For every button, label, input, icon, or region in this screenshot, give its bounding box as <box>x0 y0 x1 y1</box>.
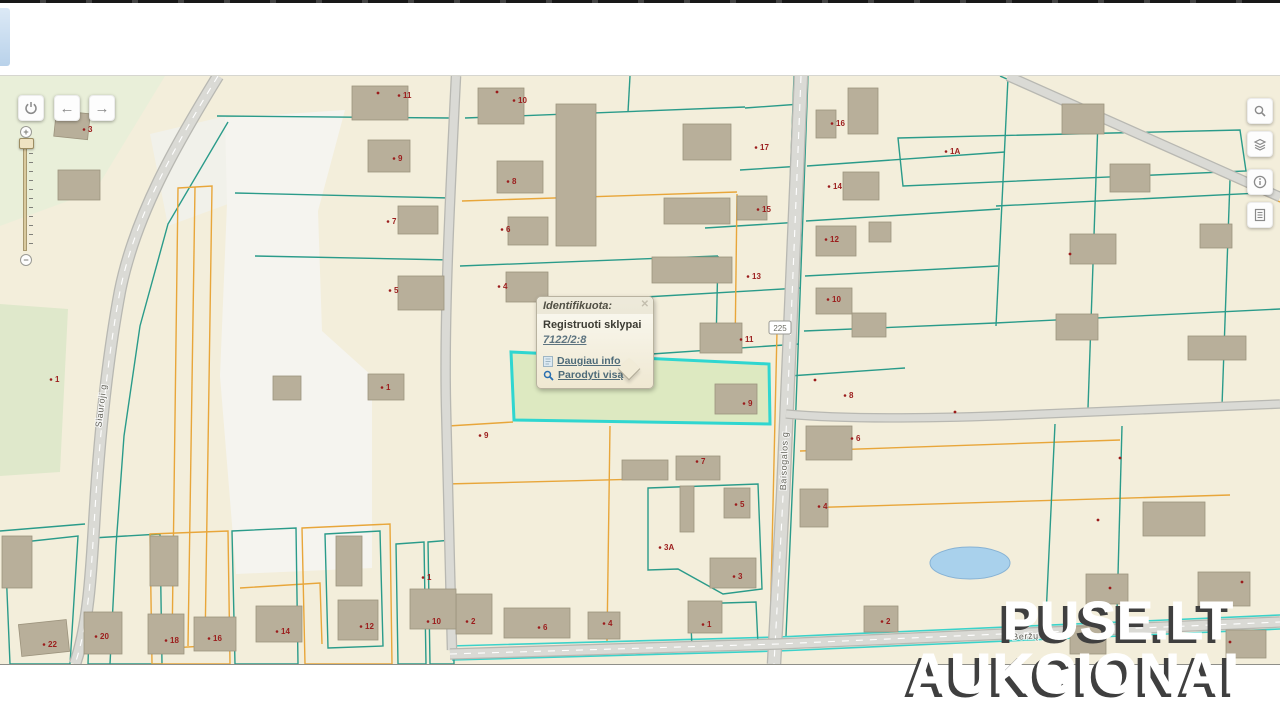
road-shield-label: 225 <box>773 324 787 333</box>
zoom-slider-ticks <box>29 144 33 250</box>
house-number-dot <box>757 208 760 211</box>
house-number-label: 18 <box>170 636 179 645</box>
next-extent-button[interactable]: → <box>89 95 115 121</box>
house-number-label: 10 <box>432 617 441 626</box>
zoom-slider[interactable]: + − <box>19 126 34 268</box>
previous-extent-button[interactable]: ← <box>54 95 80 121</box>
house-number-dot <box>945 150 948 153</box>
power-icon <box>24 101 38 115</box>
house-number-label: 15 <box>762 205 771 214</box>
house-number-dot <box>1097 519 1100 522</box>
search-icon <box>1253 104 1267 118</box>
house-number-dot <box>740 338 743 341</box>
building <box>497 161 543 193</box>
building <box>652 257 732 283</box>
house-number-dot <box>208 637 211 640</box>
house-number-dot <box>43 643 46 646</box>
house-number-dot <box>844 394 847 397</box>
parcel-id-link[interactable]: 7122/2:8 <box>543 334 647 346</box>
house-number-label: 10 <box>832 295 841 304</box>
house-number-label: 7 <box>392 217 397 226</box>
building <box>843 172 879 200</box>
house-number-label: 7 <box>701 457 706 466</box>
building <box>1062 104 1104 134</box>
house-number-label: 9 <box>484 431 489 440</box>
house-number-label: 4 <box>823 502 828 511</box>
house-number-dot <box>747 275 750 278</box>
house-number-label: 2 <box>886 617 891 626</box>
building <box>1188 336 1246 360</box>
building <box>508 217 548 245</box>
house-number-dot <box>377 92 380 95</box>
house-number-label: 12 <box>365 622 374 631</box>
building <box>1070 234 1116 264</box>
page-info-icon <box>543 356 553 367</box>
building <box>1110 164 1150 192</box>
building <box>700 323 742 353</box>
house-number-dot <box>479 434 482 437</box>
building <box>456 594 492 634</box>
house-number-label: 17 <box>760 143 769 152</box>
search-button[interactable] <box>1247 98 1273 124</box>
house-number-dot <box>825 238 828 241</box>
building <box>504 608 570 638</box>
arrow-left-icon: ← <box>60 100 75 117</box>
land-zone <box>0 304 68 476</box>
house-number-dot <box>827 298 830 301</box>
building <box>273 376 301 400</box>
building <box>869 222 891 242</box>
house-number-dot <box>387 220 390 223</box>
house-number-label: 22 <box>48 640 57 649</box>
zoom-out-button[interactable]: − <box>20 254 32 266</box>
building <box>864 606 898 632</box>
close-icon[interactable]: ✕ <box>641 299 649 310</box>
zoom-in-button[interactable]: + <box>20 126 32 138</box>
house-number-dot <box>427 620 430 623</box>
house-number-label: 6 <box>856 434 861 443</box>
info-icon <box>1253 175 1267 189</box>
house-number-label: 4 <box>608 619 613 628</box>
building <box>2 536 32 588</box>
watermark-line2: AUKCIONAI <box>908 646 1240 703</box>
house-number-dot <box>881 620 884 623</box>
info-button[interactable] <box>1247 169 1273 195</box>
building <box>664 198 730 224</box>
house-number-label: 3 <box>88 125 93 134</box>
house-number-label: 1A <box>950 147 960 156</box>
house-number-label: 16 <box>836 119 845 128</box>
house-number-dot <box>1119 457 1122 460</box>
house-number-label: 11 <box>745 335 754 344</box>
house-number-dot <box>83 128 86 131</box>
zoom-slider-handle[interactable] <box>19 138 34 149</box>
building <box>398 206 438 234</box>
building <box>806 426 852 460</box>
house-number-dot <box>381 386 384 389</box>
building <box>148 614 184 654</box>
house-number-dot <box>360 625 363 628</box>
house-number-label: 9 <box>398 154 403 163</box>
house-number-dot <box>95 635 98 638</box>
building <box>398 276 444 310</box>
house-number-label: 6 <box>543 623 548 632</box>
house-number-label: 13 <box>752 272 761 281</box>
results-list-icon <box>1253 208 1267 222</box>
house-number-label: 16 <box>213 634 222 643</box>
house-number-dot <box>466 620 469 623</box>
building <box>724 488 750 518</box>
building <box>852 313 886 337</box>
house-number-dot <box>393 157 396 160</box>
browser-edge-fragment <box>0 8 10 66</box>
building <box>556 104 596 246</box>
house-number-label: 5 <box>740 500 745 509</box>
house-number-dot <box>538 626 541 629</box>
house-number-dot <box>1241 581 1244 584</box>
building <box>710 558 756 588</box>
house-number-dot <box>733 575 736 578</box>
more-info-label: Daugiau info <box>557 355 621 367</box>
building <box>680 486 694 532</box>
house-number-label: 12 <box>830 235 839 244</box>
building <box>58 170 100 200</box>
building <box>336 536 362 586</box>
house-number-dot <box>513 99 516 102</box>
house-number-label: 20 <box>100 632 109 641</box>
house-number-label: 8 <box>512 177 517 186</box>
building <box>848 88 878 134</box>
watermark-line1: PUSE.LT <box>1003 594 1234 648</box>
house-number-dot <box>507 180 510 183</box>
house-number-dot <box>50 378 53 381</box>
house-number-dot <box>1109 587 1112 590</box>
house-number-label: 1 <box>707 620 712 629</box>
house-number-label: 2 <box>471 617 476 626</box>
house-number-dot <box>743 402 746 405</box>
building <box>368 140 410 172</box>
house-number-label: 3A <box>664 543 674 552</box>
building <box>1143 502 1205 536</box>
layers-button[interactable] <box>1247 131 1273 157</box>
building <box>478 88 524 124</box>
house-number-dot <box>1069 253 1072 256</box>
building <box>676 456 720 480</box>
house-number-label: 3 <box>738 572 743 581</box>
show-all-label: Parodyti visą <box>558 369 623 381</box>
house-number-dot <box>814 379 817 382</box>
house-number-dot <box>498 285 501 288</box>
building <box>1056 314 1098 340</box>
house-number-dot <box>501 228 504 231</box>
house-number-label: 4 <box>503 282 508 291</box>
house-number-label: 1 <box>386 383 391 392</box>
house-number-dot <box>702 623 705 626</box>
building <box>688 601 722 633</box>
house-number-dot <box>398 94 401 97</box>
building <box>352 86 408 120</box>
layers-icon <box>1253 137 1267 151</box>
house-number-dot <box>165 639 168 642</box>
screen: 3111098765417151311161412101A11993A75312… <box>0 0 1280 720</box>
house-number-label: 8 <box>849 391 854 400</box>
building <box>18 620 69 657</box>
house-number-label: 6 <box>506 225 511 234</box>
building <box>622 460 668 480</box>
house-number-dot <box>818 505 821 508</box>
results-list-button[interactable] <box>1247 202 1273 228</box>
identify-popup-title: Identifikuota: ✕ <box>537 297 653 314</box>
house-number-dot <box>831 122 834 125</box>
arrow-right-icon: → <box>95 100 110 117</box>
building <box>683 124 731 160</box>
letterbox-strip <box>0 0 1280 3</box>
house-number-label: 5 <box>394 286 399 295</box>
house-number-dot <box>735 503 738 506</box>
house-number-dot <box>755 146 758 149</box>
house-number-label: 9 <box>748 399 753 408</box>
house-number-label: 14 <box>833 182 842 191</box>
identify-popup: Identifikuota: ✕ Registruoti sklypai 712… <box>536 296 654 389</box>
house-number-dot <box>603 622 606 625</box>
house-number-label: 10 <box>518 96 527 105</box>
magnifier-icon <box>543 370 554 381</box>
house-number-label: 11 <box>403 91 412 100</box>
pond <box>930 547 1010 579</box>
building <box>256 606 302 642</box>
building <box>1200 224 1232 248</box>
house-number-label: 1 <box>55 375 60 384</box>
house-number-dot <box>276 630 279 633</box>
house-number-dot <box>659 546 662 549</box>
house-number-dot <box>828 185 831 188</box>
power-button[interactable] <box>18 95 44 121</box>
house-number-dot <box>696 460 699 463</box>
building <box>150 536 178 586</box>
house-number-dot <box>954 411 957 414</box>
house-number-dot <box>422 576 425 579</box>
building <box>588 612 620 639</box>
house-number-label: 1 <box>427 573 432 582</box>
house-number-dot <box>496 91 499 94</box>
house-number-dot <box>851 437 854 440</box>
house-number-dot <box>389 289 392 292</box>
street-name-label: Baisogalos g <box>778 431 790 490</box>
identify-popup-title-text: Identifikuota: <box>543 300 612 312</box>
layer-name-label: Registruoti sklypai <box>543 319 647 331</box>
zoom-slider-track[interactable] <box>23 141 27 251</box>
building <box>338 600 378 640</box>
house-number-label: 14 <box>281 627 290 636</box>
